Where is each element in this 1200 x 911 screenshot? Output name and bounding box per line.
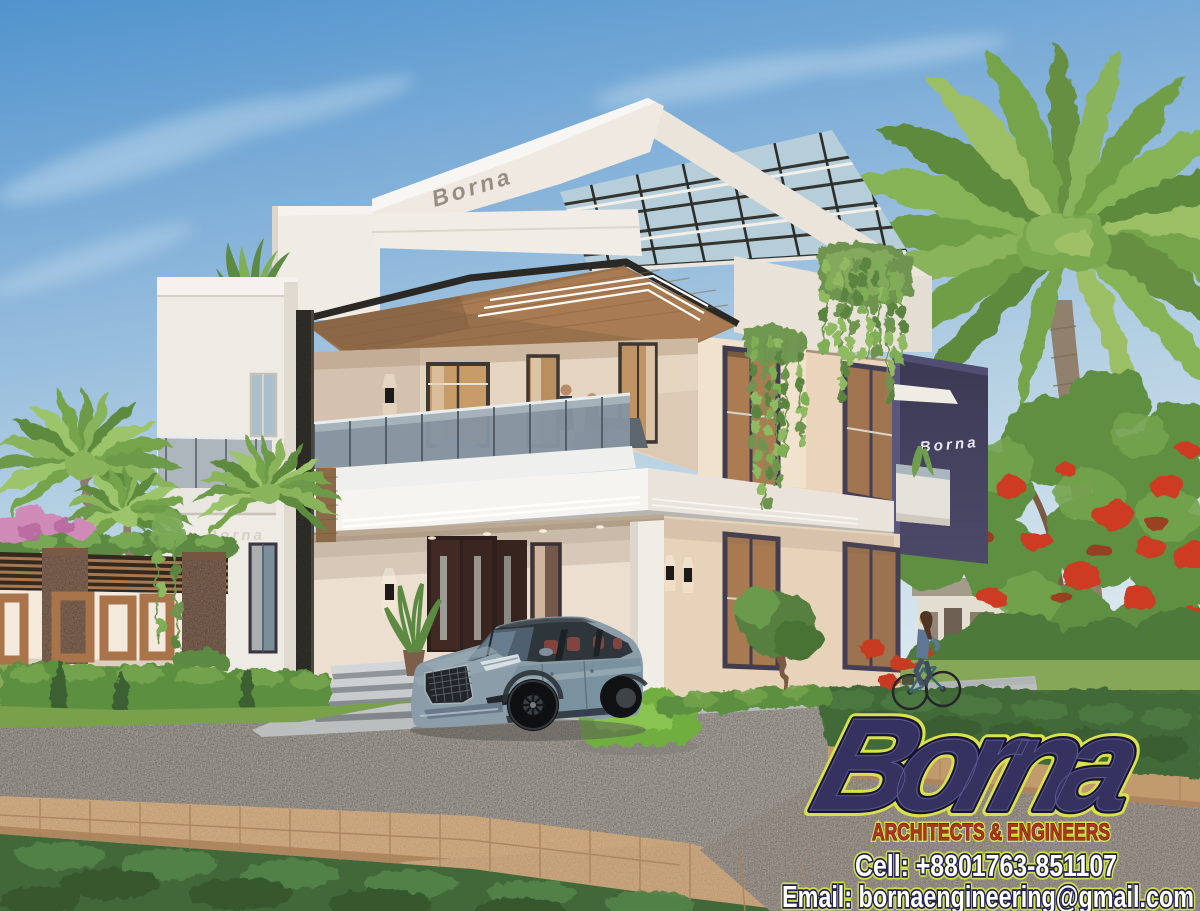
svg-text:Email: bornaengineering@gmail.: Email: bornaengineering@gmail.com [782, 879, 1194, 911]
svg-text:Cell: +8801763-851107: Cell: +8801763-851107 [855, 848, 1117, 883]
svg-text:Borna: Borna [800, 690, 1158, 838]
svg-text:ARCHITECTS & ENGINEERS: ARCHITECTS & ENGINEERS [872, 819, 1110, 846]
